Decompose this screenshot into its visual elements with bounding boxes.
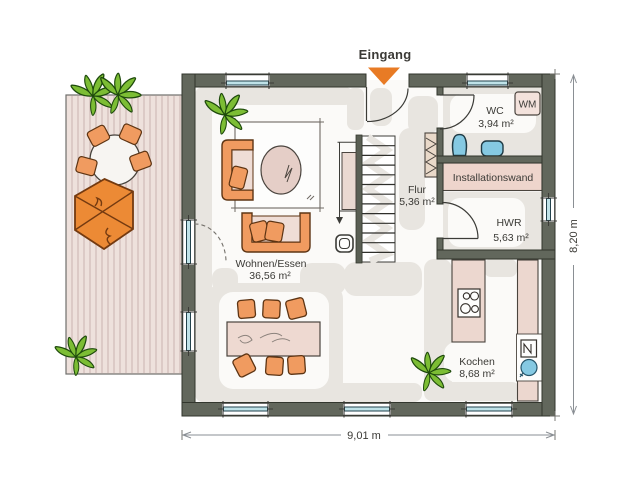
svg-text:8,20 m: 8,20 m — [568, 219, 580, 253]
svg-text:8,68 m²: 8,68 m² — [459, 368, 495, 380]
svg-text:3,94 m²: 3,94 m² — [478, 118, 514, 130]
svg-text:WC: WC — [486, 105, 504, 117]
svg-text:Flur: Flur — [408, 184, 427, 196]
svg-text:5,63 m²: 5,63 m² — [493, 232, 529, 244]
svg-text:5,36 m²: 5,36 m² — [399, 196, 435, 208]
svg-text:9,01 m: 9,01 m — [347, 430, 381, 442]
svg-text:Wohnen/Essen: Wohnen/Essen — [235, 258, 306, 270]
svg-text:36,56 m²: 36,56 m² — [249, 270, 291, 282]
svg-text:Kochen: Kochen — [459, 356, 495, 368]
svg-text:Installationswand: Installationswand — [453, 172, 534, 184]
svg-text:HWR: HWR — [496, 217, 521, 229]
svg-text:WM: WM — [519, 100, 537, 111]
svg-text:Eingang: Eingang — [359, 47, 412, 62]
